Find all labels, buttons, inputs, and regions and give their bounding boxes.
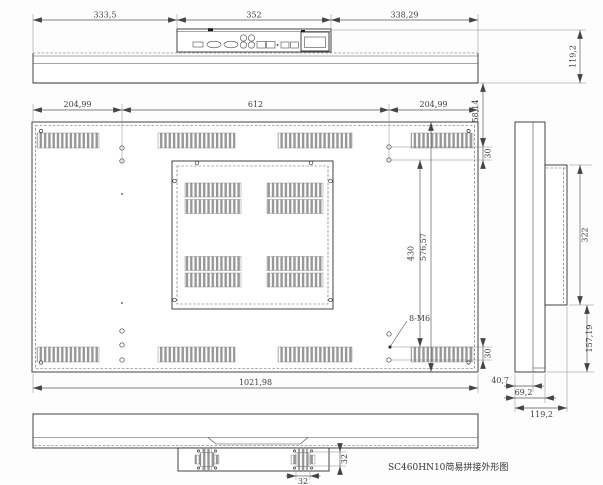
engineering-drawing: 333,5 352 338,29 119,2 58,14 204,99 612 … [0, 0, 603, 485]
side-module [301, 32, 329, 51]
vent-group [267, 200, 323, 214]
side-panel [515, 122, 545, 372]
corner-screw [39, 361, 42, 364]
vent-group [185, 183, 241, 197]
dim-top-width-left: 333,5 [94, 11, 117, 20]
vent-group [185, 257, 241, 271]
thread-note: 8-M6 [409, 314, 430, 323]
dim-recess-height: 322 [581, 227, 590, 242]
dim-width-total: 1021,98 [239, 378, 272, 387]
dim-depth-total-top: 119,2 [569, 45, 578, 68]
dim-speaker-height: 32 [340, 454, 349, 464]
dim-top-width-mid: 352 [246, 11, 261, 20]
vent-group [158, 347, 235, 362]
dim-mid-depth: 69,2 [515, 388, 533, 397]
dim-speaker-width: 32 [298, 477, 308, 485]
dim-top-width-right: 338,29 [391, 11, 419, 20]
speaker-right [291, 448, 315, 472]
vent-group [267, 257, 323, 271]
plate-screw [329, 298, 333, 302]
dim-hole-span-v: 430 [407, 246, 416, 261]
dim-lower-height: 157,19 [585, 325, 594, 353]
dim-edge-to-hole: 58,14 [471, 100, 480, 123]
vent-group [278, 133, 352, 148]
dim-side-margin-left: 204,99 [64, 100, 92, 109]
bottom-bar [33, 414, 478, 448]
dim-front-depth: 40,7 [491, 376, 509, 385]
plate-screw [329, 179, 333, 183]
plate-screw [173, 298, 177, 302]
vent-group [267, 273, 323, 287]
vent-group [158, 133, 235, 148]
drawing-canvas: 333,5 352 338,29 119,2 58,14 204,99 612 … [0, 0, 603, 485]
corner-screw [39, 129, 42, 132]
plate-screw [173, 179, 177, 183]
dim-side-margin-right: 204,99 [420, 100, 448, 109]
dim-hole-gap-top: 30 [484, 148, 493, 158]
speaker-left [195, 448, 219, 472]
side-view [515, 122, 567, 372]
corner-screw [467, 129, 470, 132]
dim-hole-gap-bottom: 30 [484, 348, 493, 358]
corner-screw [467, 361, 470, 364]
vent-group [185, 200, 241, 214]
plate-screw [195, 161, 199, 165]
plate-screw [309, 161, 313, 165]
drawing-title: SC460HN10简易拼接外形图 [388, 461, 508, 473]
panel-mark-left [208, 28, 213, 31]
vent-group [185, 273, 241, 287]
dim-depth-total-side: 119,2 [530, 410, 553, 419]
dim-hole-span-h: 612 [248, 100, 263, 109]
vent-group [278, 347, 352, 362]
top-view [33, 28, 478, 83]
dim-height-total: 576,57 [419, 233, 428, 261]
vent-group [37, 133, 99, 148]
vent-group [411, 133, 473, 148]
vent-group [267, 183, 323, 197]
vent-group [37, 347, 99, 362]
led-dot [277, 44, 279, 46]
vesa-plate [172, 161, 333, 309]
